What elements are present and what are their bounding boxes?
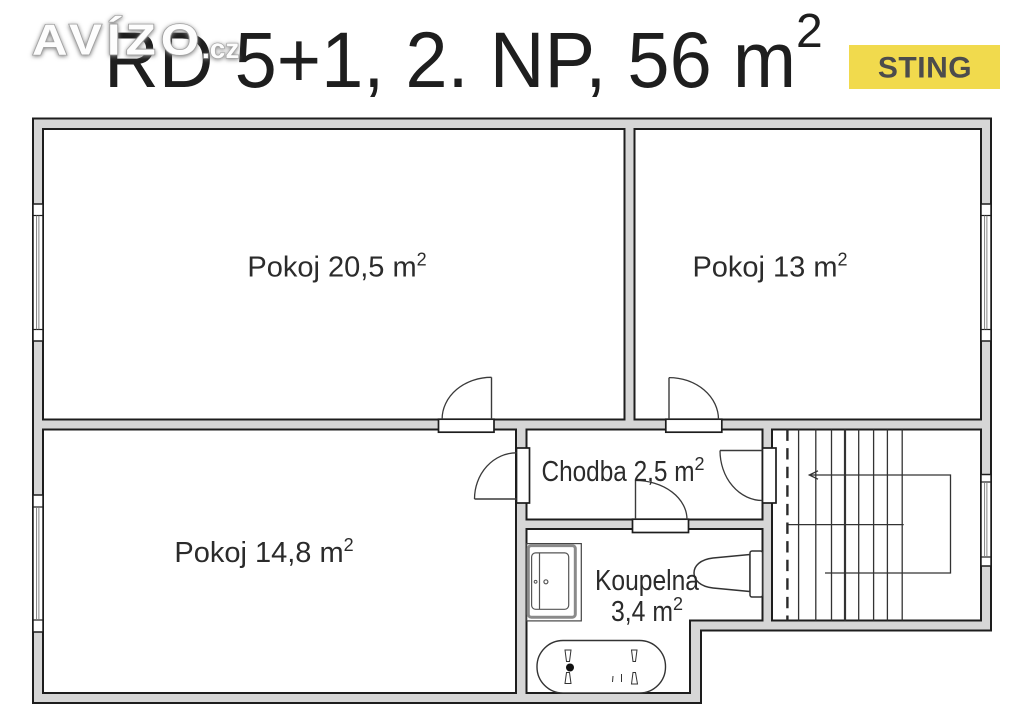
svg-text:Chodba 2,5 m2: Chodba 2,5 m2 [541, 454, 704, 488]
svg-text:Pokoj 14,8 m2: Pokoj 14,8 m2 [174, 535, 353, 569]
svg-text:3,4 m2: 3,4 m2 [611, 594, 683, 628]
svg-text:.cz: .cz [202, 33, 239, 64]
svg-text:Pokoj 20,5 m2: Pokoj 20,5 m2 [247, 250, 426, 284]
svg-text:Pokoj 13 m2: Pokoj 13 m2 [692, 250, 847, 284]
svg-text:Koupelna: Koupelna [595, 565, 700, 597]
svg-text:AVÍZO: AVÍZO [32, 15, 204, 64]
svg-text:STING: STING [878, 52, 972, 85]
